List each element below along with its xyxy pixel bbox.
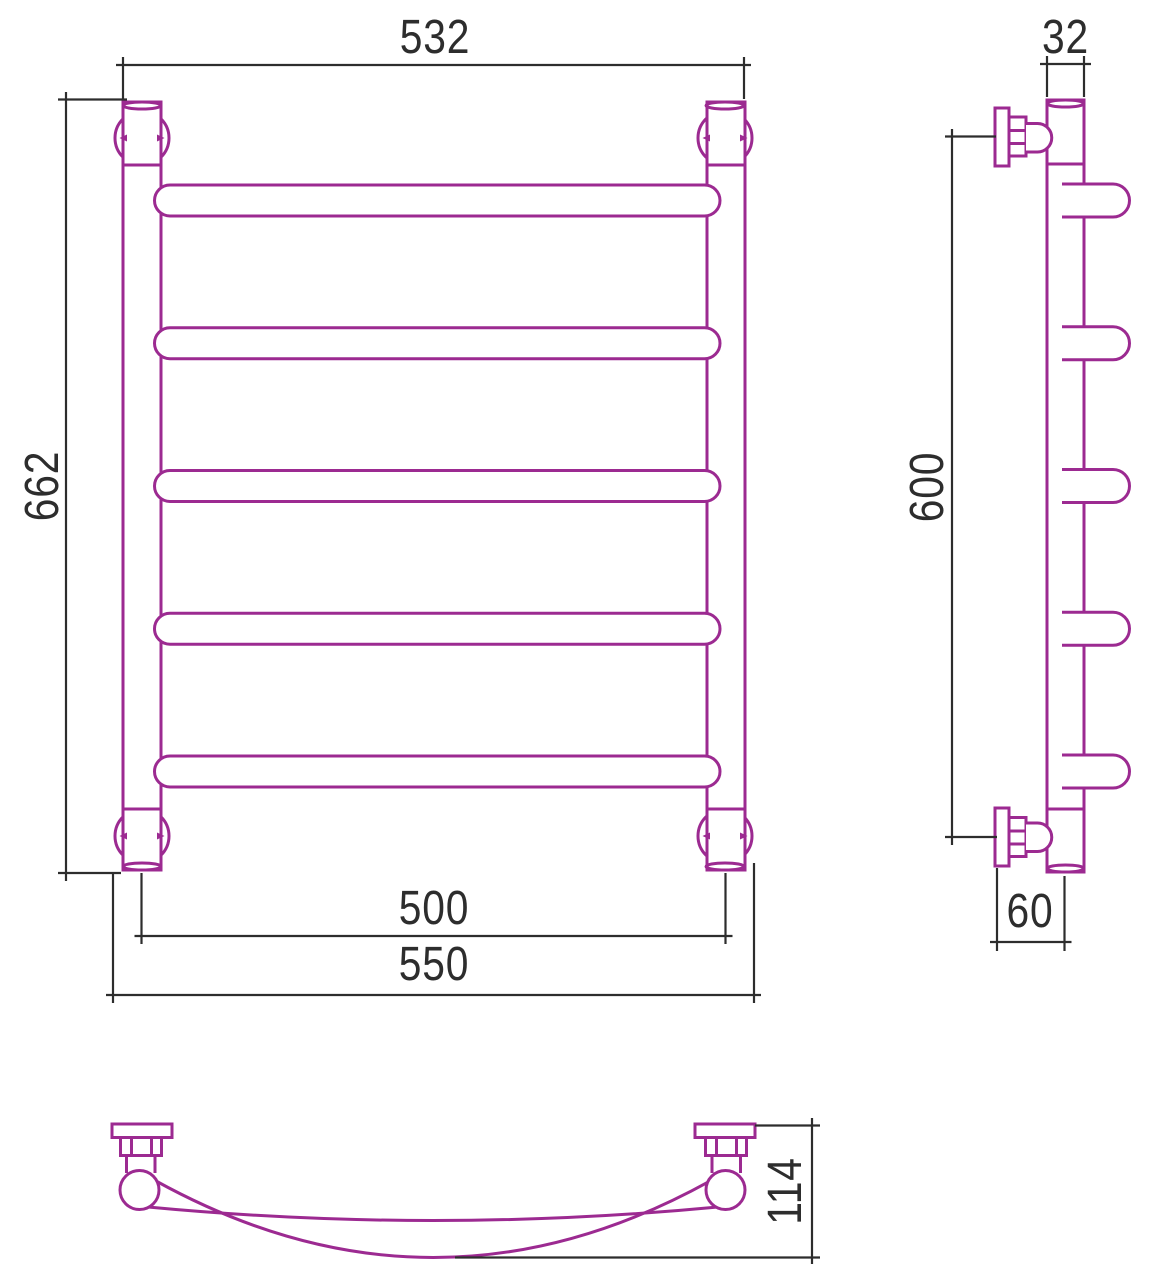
bar-5 [155,756,721,787]
bar-2 [155,328,721,359]
wall-flange-top [995,108,1009,166]
tube-cap [1047,100,1084,107]
tube-cap [706,102,744,109]
dimension-32: 32 [1040,11,1091,97]
dimension-114: 114 [455,1118,820,1264]
tube-cap [1047,865,1084,872]
wall-flange-bottom [995,808,1009,866]
fastener-connector-bottom [1026,823,1052,852]
wall-flange-plan-right [695,1124,755,1138]
dimension-label-550: 550 [399,938,470,991]
dimension-label-60: 60 [1006,885,1053,938]
dimension-label-32: 32 [1042,11,1089,64]
dimension-500: 500 [135,873,733,944]
top-view [112,1124,755,1258]
side-view [995,100,1130,872]
bar-4 [155,613,721,644]
dimension-600: 600 [901,129,997,845]
hex-nut-plan-left [121,1138,162,1156]
hex-nut-bottom [1009,818,1026,857]
tube-cap [706,863,744,870]
dimension-label-114: 114 [759,1157,812,1225]
tube-section-right [706,1171,745,1210]
dimension-label-532: 532 [400,11,471,64]
bar-stub-4 [1062,612,1130,645]
bar-stub-3 [1062,470,1130,503]
technical-drawing: 532 662 500 550 [0,0,1150,1280]
front-view [115,102,752,870]
hex-nut-top [1009,117,1026,156]
bar-3 [155,471,721,502]
wall-flange-plan-left [112,1124,172,1138]
dimension-label-500: 500 [399,882,470,935]
dimension-662: 662 [16,92,127,881]
tube-cap [123,863,161,870]
dimension-532: 532 [116,11,751,99]
drawing-page: 532 662 500 550 [0,0,1150,1280]
tube-cap [123,102,161,109]
dimension-label-600: 600 [901,452,954,523]
bar-stub-5 [1062,755,1130,788]
bar-1 [155,185,721,216]
fastener-connector-top [1026,124,1052,153]
bar-stub-1 [1062,184,1130,217]
dimension-label-662: 662 [16,451,69,522]
dimension-60: 60 [990,868,1072,951]
hex-nut-plan-right [706,1138,747,1156]
bar-stub-2 [1062,327,1130,360]
tube-section-left [120,1171,159,1210]
